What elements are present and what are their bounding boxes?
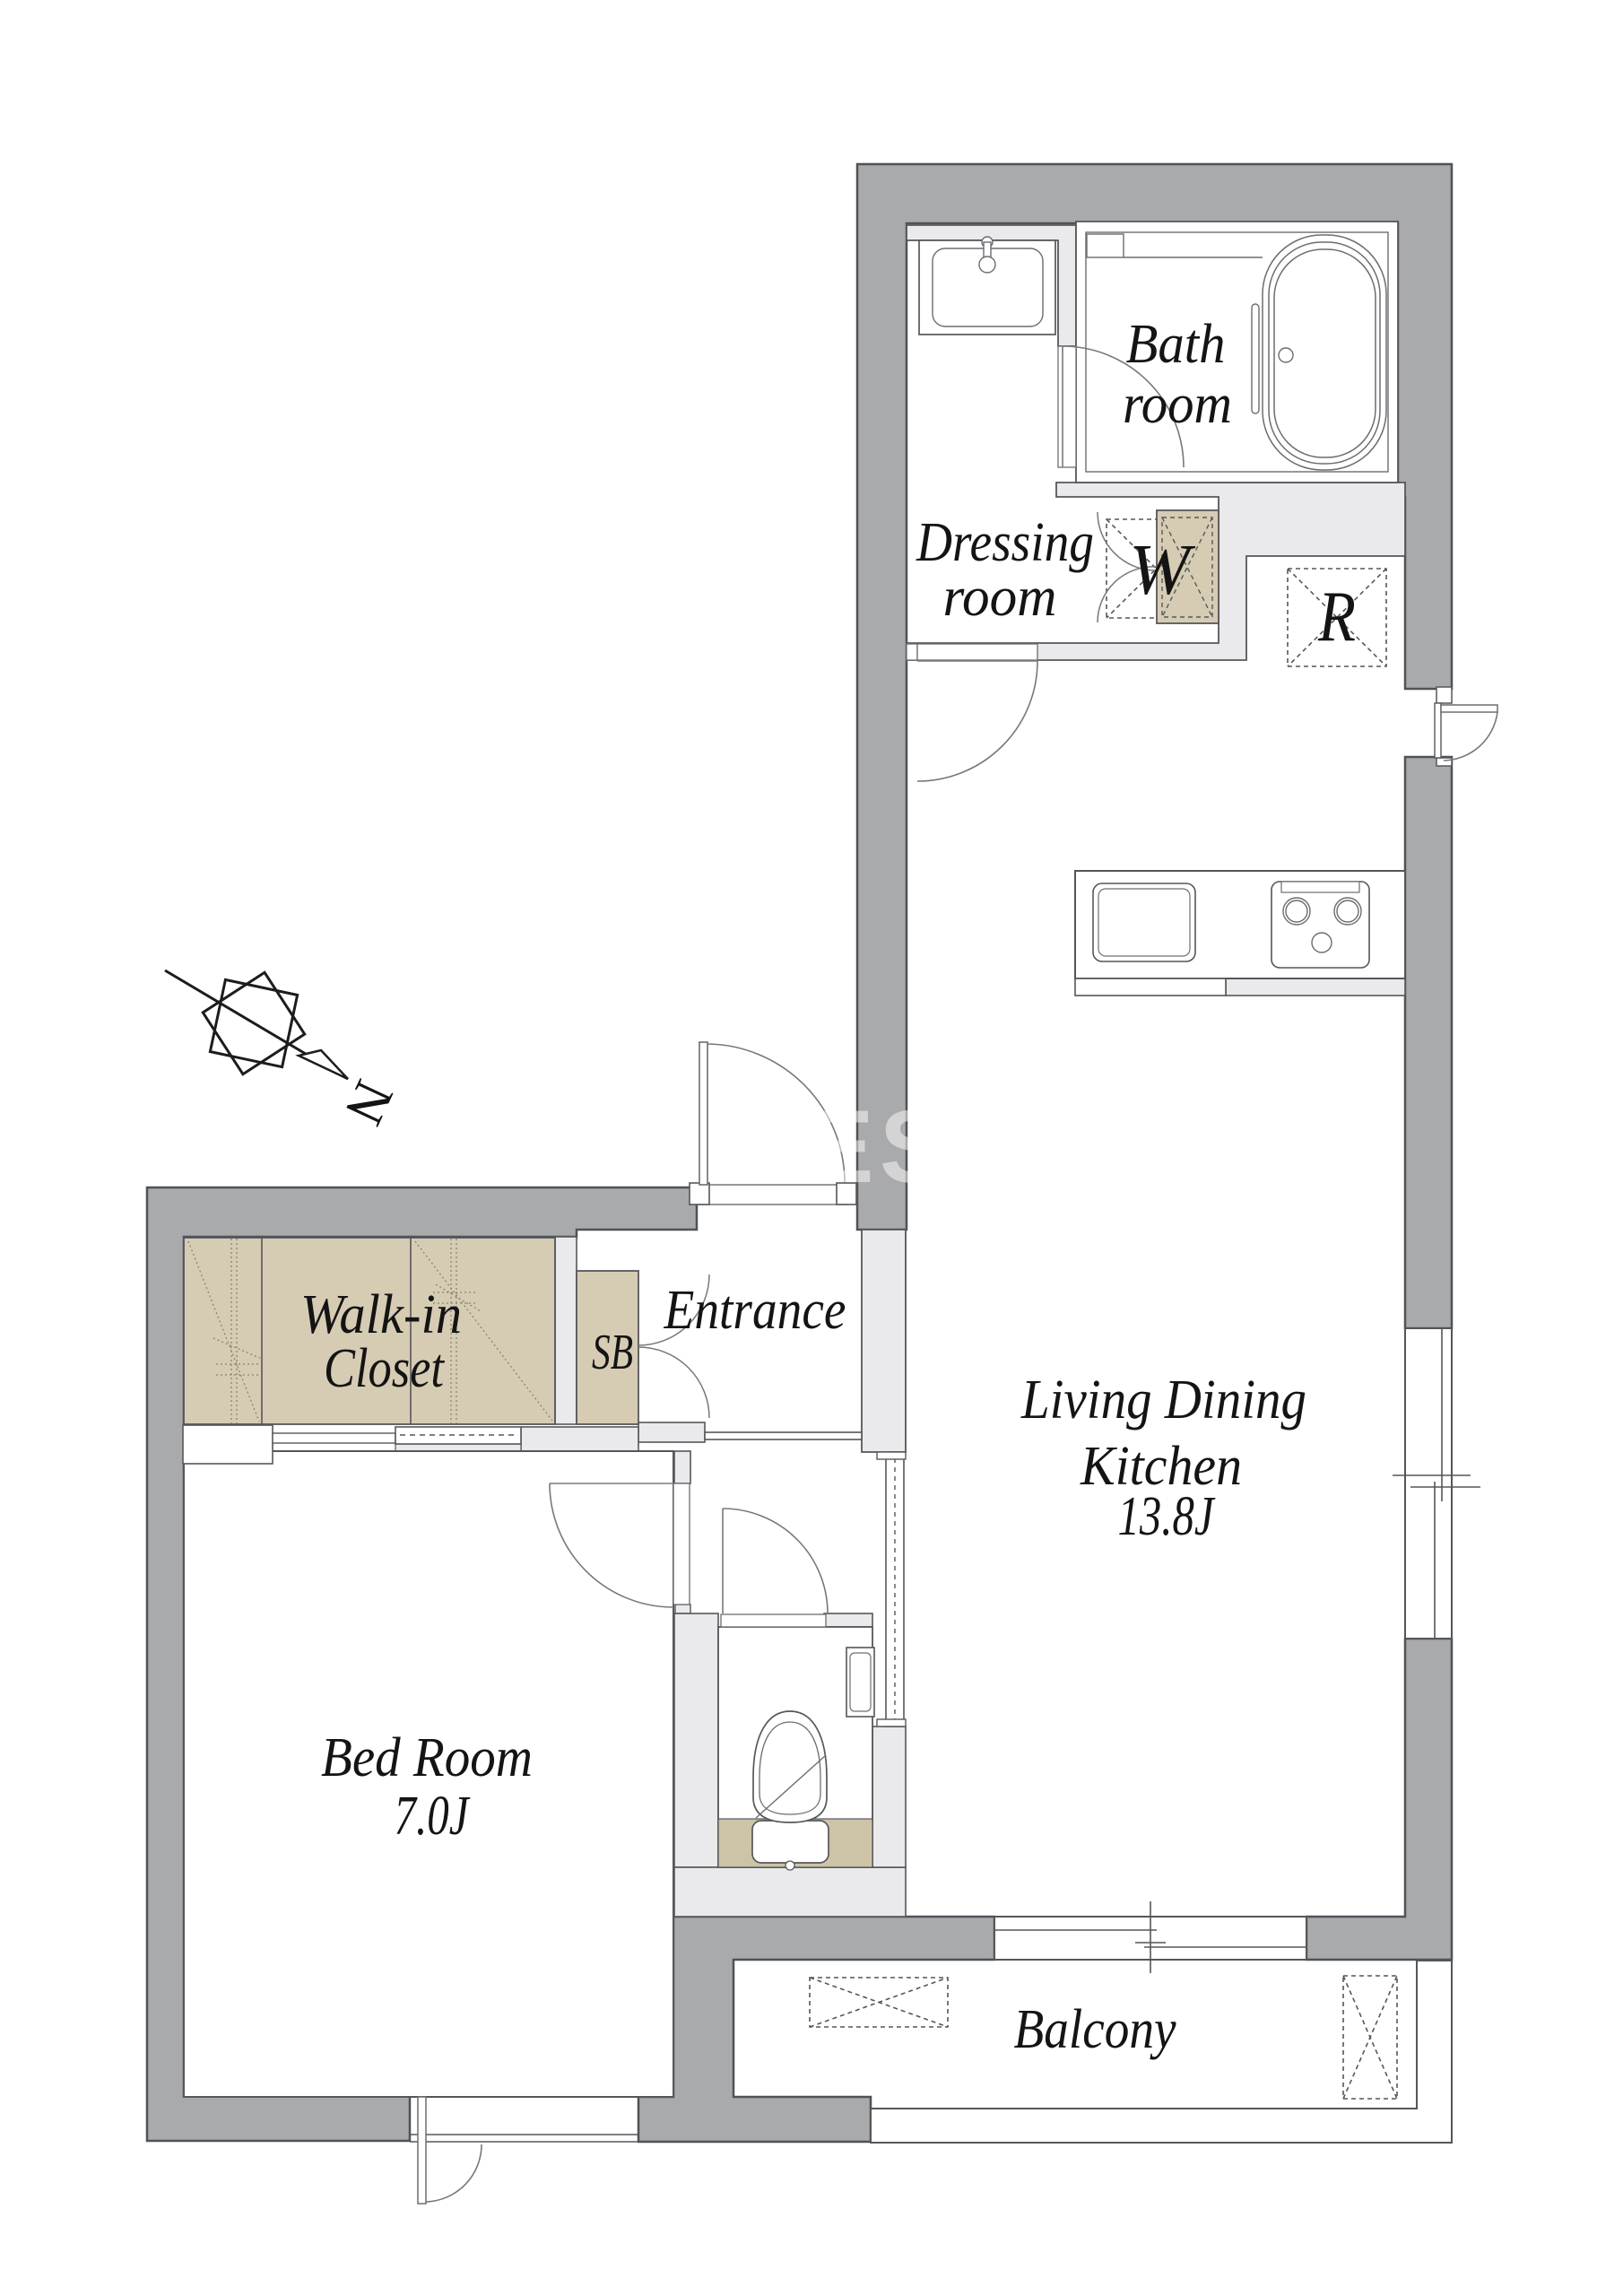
svg-text:Living Dining: Living Dining (1020, 1370, 1306, 1431)
svg-text:7.0J: 7.0J (395, 1786, 471, 1847)
svg-text:Walk-in: Walk-in (300, 1284, 462, 1345)
svg-text:Dressing: Dressing (916, 512, 1094, 573)
svg-text:Bed Room: Bed Room (321, 1727, 533, 1788)
svg-text:Balcony: Balcony (1014, 1999, 1176, 2060)
svg-text:Closet: Closet (324, 1338, 445, 1399)
svg-text:13.8J: 13.8J (1118, 1486, 1216, 1547)
svg-text:Bath: Bath (1126, 314, 1226, 375)
svg-text:N: N (333, 1071, 405, 1133)
svg-text:room: room (1123, 374, 1232, 435)
svg-text:R: R (1317, 578, 1356, 657)
svg-text:SB: SB (592, 1325, 633, 1380)
svg-text:Entrance: Entrance (664, 1280, 846, 1341)
svg-text:W: W (1129, 531, 1195, 610)
svg-text:ES: ES (805, 1090, 953, 1205)
svg-text:room: room (943, 567, 1057, 628)
